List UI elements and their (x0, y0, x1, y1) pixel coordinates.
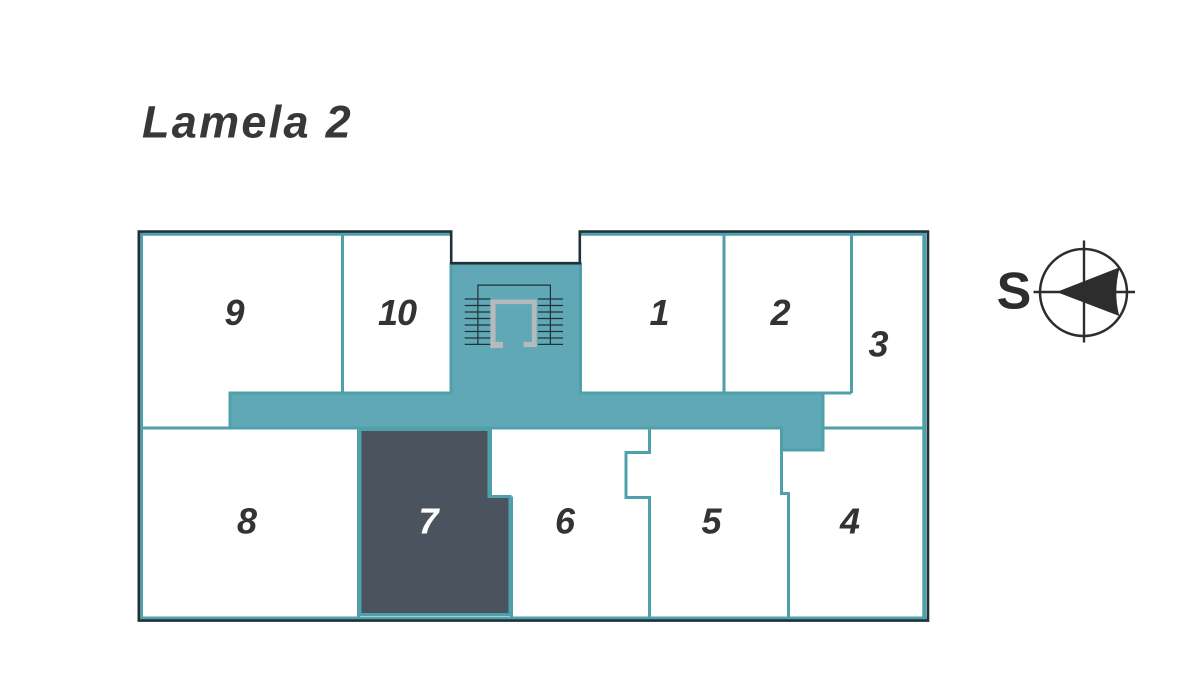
svg-text:9: 9 (224, 292, 244, 333)
svg-text:3: 3 (868, 324, 888, 365)
svg-text:4: 4 (839, 501, 860, 542)
svg-text:7: 7 (418, 501, 440, 542)
svg-text:5: 5 (701, 501, 722, 542)
svg-text:S: S (997, 263, 1032, 321)
svg-text:8: 8 (237, 501, 257, 542)
svg-text:1: 1 (649, 292, 669, 333)
svg-text:Lamela 2: Lamela 2 (142, 97, 353, 148)
svg-text:2: 2 (769, 292, 790, 333)
svg-text:10: 10 (378, 292, 417, 333)
svg-text:6: 6 (555, 501, 576, 542)
